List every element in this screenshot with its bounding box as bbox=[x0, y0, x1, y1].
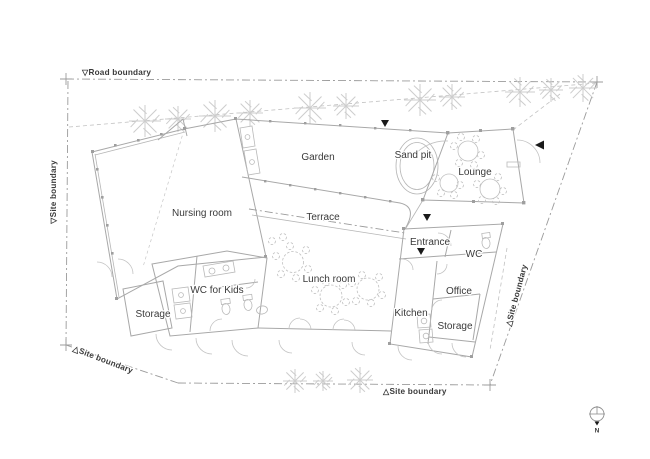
entrance-arrow-marker bbox=[417, 248, 425, 255]
floor-plan-drawing: ▽Road boundary ▽Site boundary △Site boun… bbox=[0, 0, 650, 459]
storage-east-label: Storage bbox=[437, 321, 472, 332]
storage-west-label: Storage bbox=[135, 309, 170, 320]
wc-label: WC bbox=[466, 249, 483, 260]
north-letter: N bbox=[595, 428, 600, 435]
south-trees bbox=[283, 367, 373, 393]
garden-label: Garden bbox=[301, 152, 334, 163]
north-symbol: N bbox=[589, 406, 605, 435]
site-boundary-bottom-label: △Site boundary bbox=[382, 387, 447, 396]
garden-arrow-marker bbox=[381, 120, 389, 127]
nursing-room-label: Nursing room bbox=[172, 208, 232, 219]
kitchen-label: Kitchen bbox=[394, 308, 427, 319]
entrance-label: Entrance bbox=[410, 237, 450, 248]
floor-plan-page: ▽Road boundary ▽Site boundary △Site boun… bbox=[0, 0, 650, 459]
garden-fence bbox=[236, 119, 448, 133]
lounge-label: Lounge bbox=[458, 167, 492, 178]
lunch-room-label: Lunch room bbox=[303, 274, 356, 285]
site-boundary-bottom-left-label: △Site boundary bbox=[71, 344, 135, 376]
sand-pit-label: Sand pit bbox=[395, 150, 432, 161]
terrace-deck bbox=[242, 177, 410, 239]
lounge-arrow-marker bbox=[535, 141, 544, 150]
labels: ▽Road boundary ▽Site boundary △Site boun… bbox=[49, 68, 529, 396]
wc-for-kids-label: WC for Kids bbox=[190, 285, 243, 296]
site-boundary-left-label: ▽Site boundary bbox=[49, 160, 58, 225]
site-boundary-right-label: △Site boundary bbox=[504, 263, 529, 328]
sand-pit-circle bbox=[396, 138, 438, 194]
wing-arrow-marker bbox=[423, 214, 431, 221]
office-label: Office bbox=[446, 286, 472, 297]
terrace-label: Terrace bbox=[306, 212, 340, 223]
lunch-room bbox=[258, 234, 391, 356]
road-boundary-label: ▽Road boundary bbox=[81, 68, 151, 77]
north-arrow-icon bbox=[595, 422, 600, 426]
wc-for-kids-walls bbox=[152, 251, 268, 356]
wc-toilet bbox=[481, 232, 490, 249]
